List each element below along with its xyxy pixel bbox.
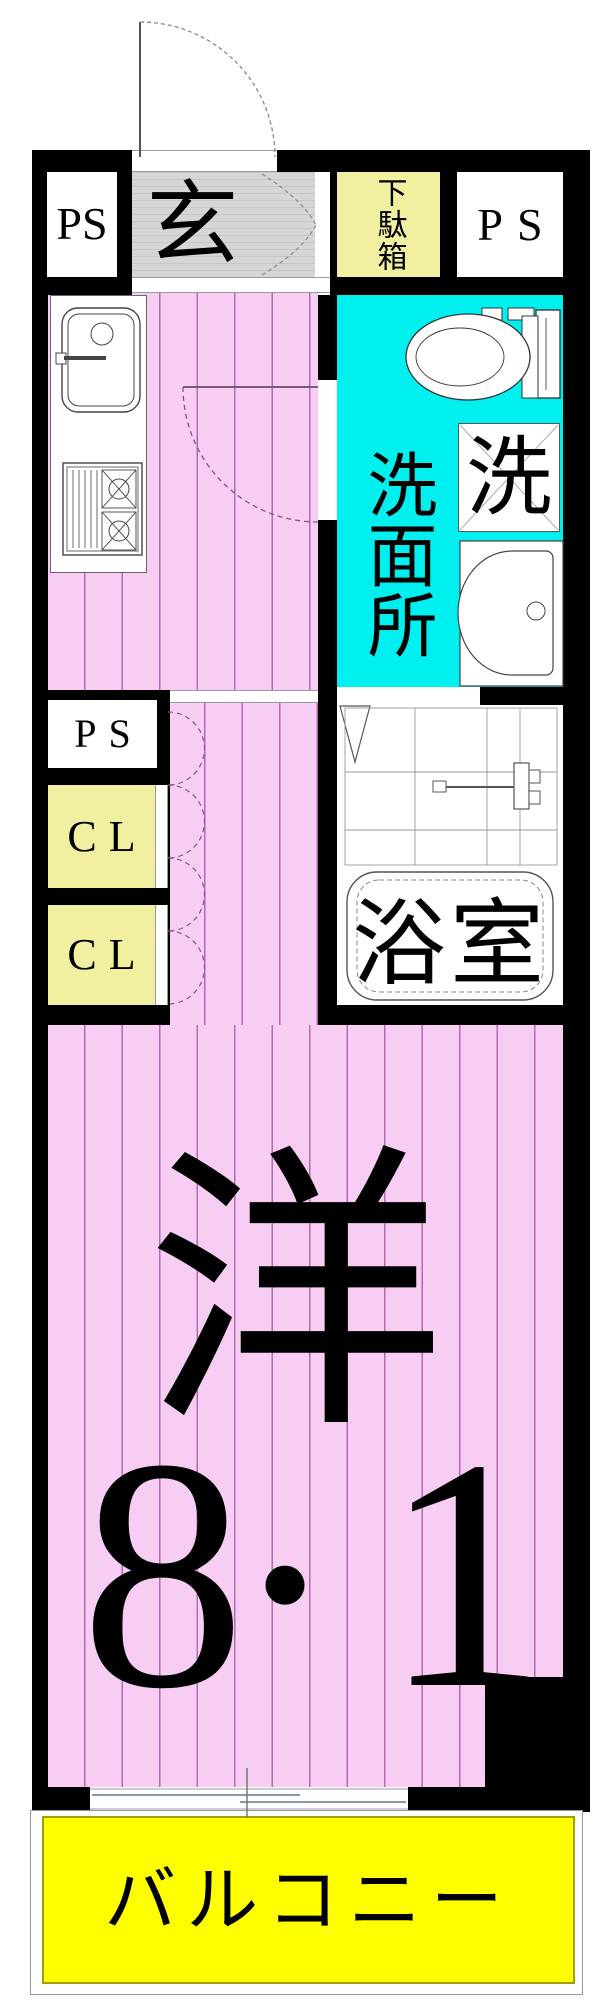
closet-1-label: CL bbox=[48, 785, 155, 888]
wall-washroom-lower bbox=[318, 520, 337, 1010]
window-sill bbox=[90, 1788, 408, 1810]
balcony-label: バルコニー bbox=[42, 1816, 575, 1984]
wall-bath-bottom bbox=[318, 1005, 590, 1025]
closet-1-door-track bbox=[155, 785, 168, 888]
closet-2-door-track bbox=[155, 905, 168, 1005]
wall-right bbox=[563, 150, 590, 1812]
washroom-label: 洗面所 bbox=[352, 420, 442, 688]
pipe-space-top-right-label: PS bbox=[457, 172, 563, 277]
bathroom-door-opening bbox=[337, 687, 480, 705]
main-room-area-dot: . bbox=[245, 1360, 325, 1620]
wall-ps-entrance bbox=[117, 172, 132, 277]
wall-below-ps-left bbox=[32, 277, 132, 295]
kitchen-counter bbox=[50, 295, 147, 573]
pipe-space-mid-label: PS bbox=[48, 700, 157, 768]
bathroom-label: 浴室 bbox=[337, 885, 563, 1005]
hallway-divider bbox=[168, 690, 318, 703]
wall-top-right bbox=[277, 150, 590, 172]
closet-2-label: CL bbox=[48, 905, 155, 1005]
main-room-area-frac: 1 bbox=[385, 1445, 545, 1705]
entrance-door-icon bbox=[140, 22, 275, 157]
wall-washroom-upper bbox=[318, 295, 337, 380]
wall-bottom-left bbox=[32, 1787, 90, 1812]
wall-below-shoebox bbox=[330, 277, 590, 295]
laundry-label: 洗 bbox=[458, 423, 560, 532]
entrance-label: 玄 bbox=[135, 177, 250, 272]
main-room-area-int: 8 bbox=[78, 1445, 248, 1705]
entrance-side-strip bbox=[315, 172, 330, 277]
pipe-space-top-left-label: PS bbox=[47, 174, 117, 275]
wall-shoebox-ps bbox=[440, 150, 457, 295]
shoe-cabinet-label: 下駄箱 bbox=[337, 174, 440, 275]
floorplan-canvas: PS 玄 下駄箱 PS 洗面所 洗 PS CL CL 浴室 洋 8 . 1 バル… bbox=[0, 0, 612, 2000]
wall-bath-top bbox=[480, 687, 590, 705]
entrance-step bbox=[132, 277, 330, 293]
wall-entrance-shoebox bbox=[330, 150, 337, 295]
entrance-door-opening bbox=[132, 150, 277, 172]
lower-hallway-floor bbox=[168, 690, 318, 1025]
washroom-door-opening bbox=[318, 380, 337, 520]
